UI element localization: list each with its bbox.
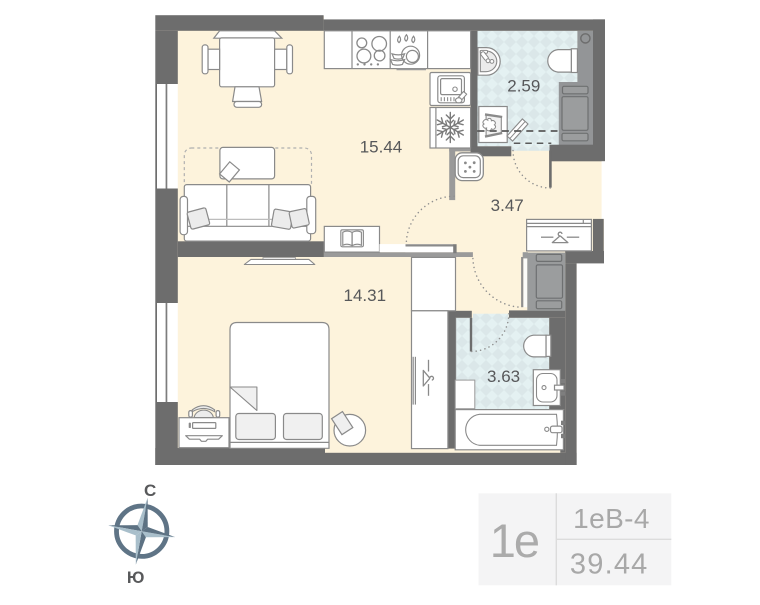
svg-text:14.31: 14.31	[344, 286, 387, 305]
svg-text:39.44: 39.44	[570, 549, 649, 581]
svg-text:1е: 1е	[490, 514, 539, 567]
svg-text:15.44: 15.44	[360, 137, 403, 156]
svg-text:1еВ-4: 1еВ-4	[573, 503, 650, 534]
svg-text:3.47: 3.47	[491, 196, 524, 215]
svg-text:Ю: Ю	[127, 568, 145, 587]
svg-text:С: С	[144, 481, 156, 500]
svg-text:3.63: 3.63	[487, 367, 520, 386]
svg-text:2.59: 2.59	[507, 77, 540, 96]
